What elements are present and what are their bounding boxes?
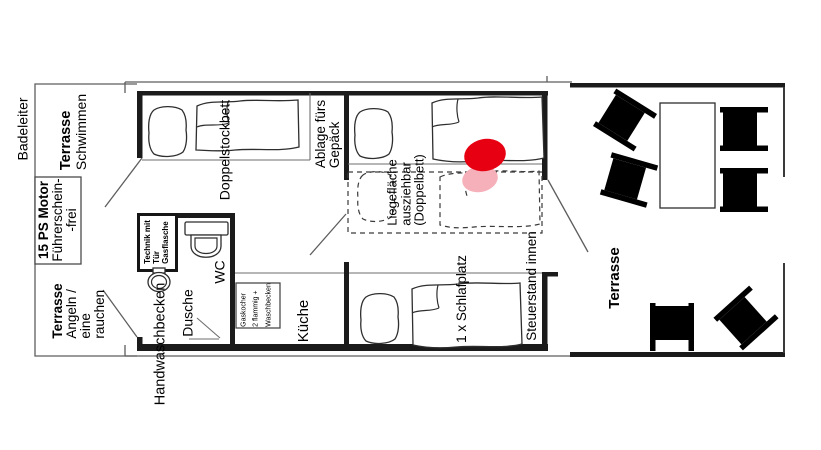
houseboat-floorplan: Badeleiter Terrasse Schwimmen 15 PS Moto… xyxy=(0,0,821,450)
label-line: Badeleiter xyxy=(16,97,31,160)
label-line: Gasflasche xyxy=(161,220,170,264)
label-line: Dusche xyxy=(181,289,196,336)
label-line: 15 PS Motor xyxy=(37,178,51,261)
label-line: Liegefläche xyxy=(386,154,400,226)
label-line: Handwaschbecken xyxy=(153,283,168,406)
terrace-chair xyxy=(650,303,694,351)
label-line: Terrasse xyxy=(51,283,65,338)
terrace-chair xyxy=(593,89,657,152)
pillow xyxy=(355,109,393,159)
pullout-bed-dashed xyxy=(348,171,542,233)
label-line: Führerschein- xyxy=(51,178,65,261)
label-line: 1 x Schlafplatz xyxy=(455,255,469,343)
label-bunk-bed: Doppelstockbett xyxy=(218,100,233,200)
pillow xyxy=(149,107,187,157)
label-line: Steuerstand innen xyxy=(525,231,539,341)
label-technik: Technik mit Tür Gasflasche xyxy=(144,220,170,264)
bathroom-wall-right xyxy=(230,213,235,351)
label-line: (Doppelbett) xyxy=(413,154,427,226)
label-line: Gaskocher xyxy=(239,283,251,327)
label-luggage: Ablage fürs Gepäck xyxy=(314,100,342,168)
label-line: Gepäck xyxy=(328,100,342,168)
label-badeleiter: Badeleiter xyxy=(16,97,31,160)
label-motor: 15 PS Motor Führerschein- -frei xyxy=(37,178,79,261)
toilet-icon xyxy=(185,222,228,257)
label-line: Terrasse xyxy=(607,247,623,308)
label-terrace-stern: Terrasse xyxy=(607,247,623,308)
label-line: Küche xyxy=(296,300,312,343)
label-helm: Steuerstand innen xyxy=(525,231,539,341)
terrace-furniture xyxy=(593,89,779,351)
label-line: Angeln / xyxy=(65,283,79,338)
label-line: Ablage fürs xyxy=(314,100,328,168)
label-line: ausziehbar xyxy=(399,154,413,226)
label-shower: Dusche xyxy=(181,289,196,336)
label-lounge: Liegefläche ausziehbar (Doppelbett) xyxy=(386,154,427,226)
label-wc: WC xyxy=(213,260,228,283)
label-kitchen: Küche xyxy=(296,300,312,343)
terrace-chair xyxy=(713,286,778,351)
terrace-chair xyxy=(720,168,768,212)
terrace-chair xyxy=(600,152,658,208)
label-terrace-swim: Terrasse Schwimmen xyxy=(59,94,89,170)
label-line: 2 flammig + xyxy=(251,283,263,327)
label-line: rauchen xyxy=(93,283,107,338)
terrace-table xyxy=(660,103,715,208)
pillow xyxy=(361,294,399,344)
label-line: -frei xyxy=(65,178,79,261)
label-line: Terrasse xyxy=(59,94,74,170)
lounge-furniture xyxy=(348,97,544,233)
label-line: Waschbecken xyxy=(263,283,275,327)
label-stove: Gaskocher 2 flammig + Waschbecken xyxy=(239,283,276,327)
label-line: Doppelstockbett xyxy=(218,100,233,200)
sleep-room-furniture xyxy=(361,283,522,348)
label-hand-basin: Handwaschbecken xyxy=(153,283,168,406)
terrace-chair xyxy=(720,107,768,151)
label-line: Schwimmen xyxy=(74,94,89,170)
label-line: WC xyxy=(213,260,228,283)
label-terrace-fish: Terrasse Angeln / eine rauchen xyxy=(51,283,107,338)
bow-passage-lines xyxy=(103,158,142,337)
label-sleep-place: 1 x Schlafplatz xyxy=(455,255,469,343)
label-line: eine xyxy=(79,283,93,338)
